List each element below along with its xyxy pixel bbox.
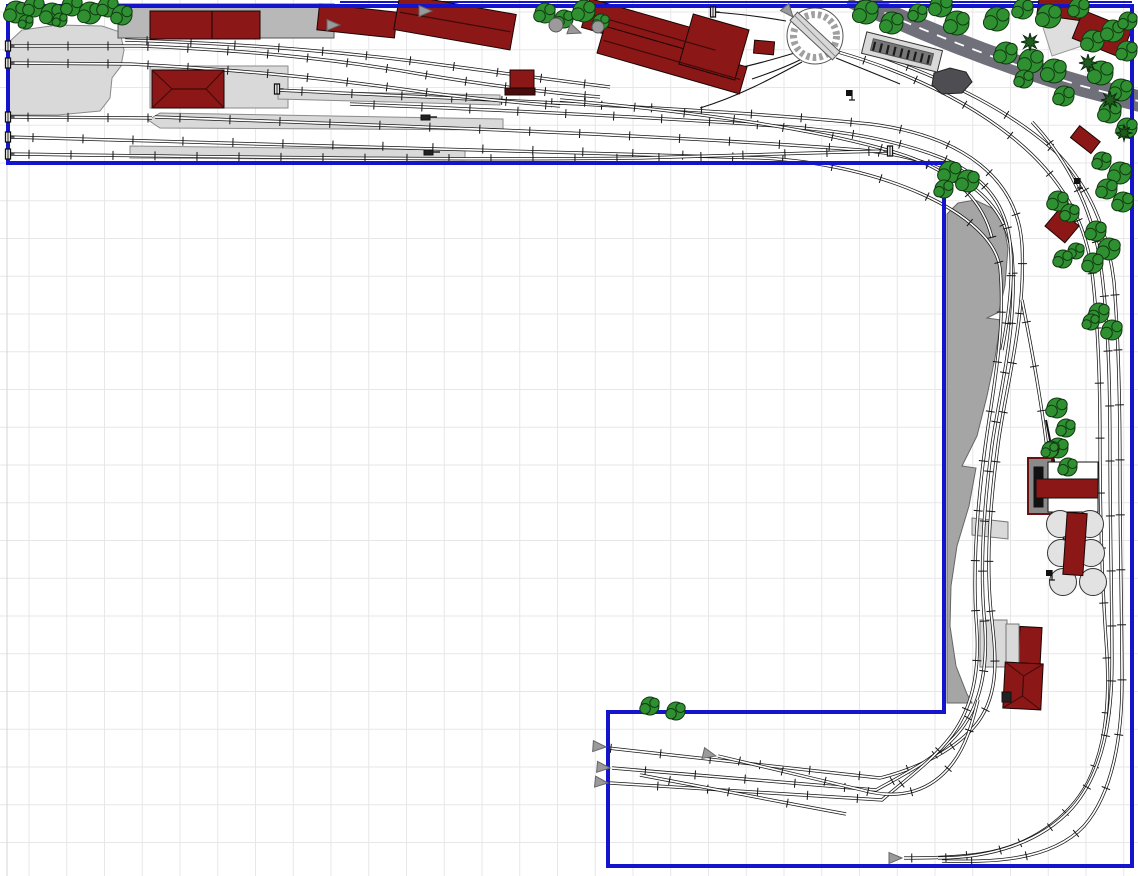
tree[interactable] [1012,0,1033,19]
platform-fixture [421,115,430,120]
tree[interactable] [1085,221,1107,241]
parked-car[interactable] [932,68,972,94]
tree[interactable] [934,180,953,198]
track-bumper[interactable] [6,149,15,159]
track-bumper[interactable] [6,132,15,142]
platform-shelter[interactable] [510,70,534,88]
tree[interactable] [1101,320,1123,340]
hut-near-turntable[interactable] [754,40,775,55]
tree[interactable] [52,13,67,27]
south-black-box [1002,692,1011,702]
track-plan-canvas [0,0,1138,876]
tree[interactable] [1053,250,1072,268]
signal[interactable] [846,90,855,100]
factory-red-band[interactable] [1036,479,1098,498]
bush[interactable] [1021,33,1039,51]
tree[interactable] [1092,152,1111,170]
storage-tank[interactable] [1080,569,1107,596]
tree[interactable] [1017,49,1043,73]
tree[interactable] [1046,398,1068,418]
bush[interactable] [1116,125,1132,141]
lineside-shed-upper[interactable] [1070,126,1100,154]
south-dock[interactable] [1006,624,1019,666]
track-bumper[interactable] [711,7,720,17]
tree[interactable] [1040,59,1066,83]
track-continuation-arrow[interactable] [593,741,607,753]
platform-shelter-base[interactable] [505,88,535,95]
tree[interactable] [1096,179,1118,199]
south-annex[interactable] [1018,626,1042,667]
bush[interactable] [1101,91,1119,109]
building-row-b[interactable] [212,11,260,39]
track-main-2[interactable] [155,113,1018,791]
tree[interactable] [983,7,1009,31]
platform-fixture [424,150,433,155]
plan-svg [0,0,1138,876]
track-turntable-lead[interactable] [713,12,786,21]
tree[interactable] [640,697,659,715]
tree[interactable] [18,15,33,29]
track-outer-2[interactable] [882,57,1126,866]
building-row-a[interactable] [150,11,212,39]
track-continuation-arrow[interactable] [889,853,902,864]
tree[interactable] [1118,12,1137,30]
tree[interactable] [1058,458,1077,476]
rock [592,21,604,33]
tree[interactable] [572,0,596,22]
town-plaza[interactable] [8,25,124,115]
track-crossover-top[interactable] [560,98,996,239]
tree[interactable] [1082,253,1104,273]
tree[interactable] [1068,0,1090,18]
bush[interactable] [1079,54,1097,72]
tree[interactable] [1082,314,1099,330]
rock [549,18,563,32]
tree[interactable] [1041,442,1058,458]
tree[interactable] [1056,419,1075,437]
tank-house[interactable] [1063,512,1087,575]
track-main-3[interactable] [8,133,1006,803]
track-industry-siding[interactable] [1022,300,1052,458]
track-shed-radial-2[interactable] [752,58,804,79]
tree[interactable] [994,42,1018,64]
tree[interactable] [666,702,685,720]
